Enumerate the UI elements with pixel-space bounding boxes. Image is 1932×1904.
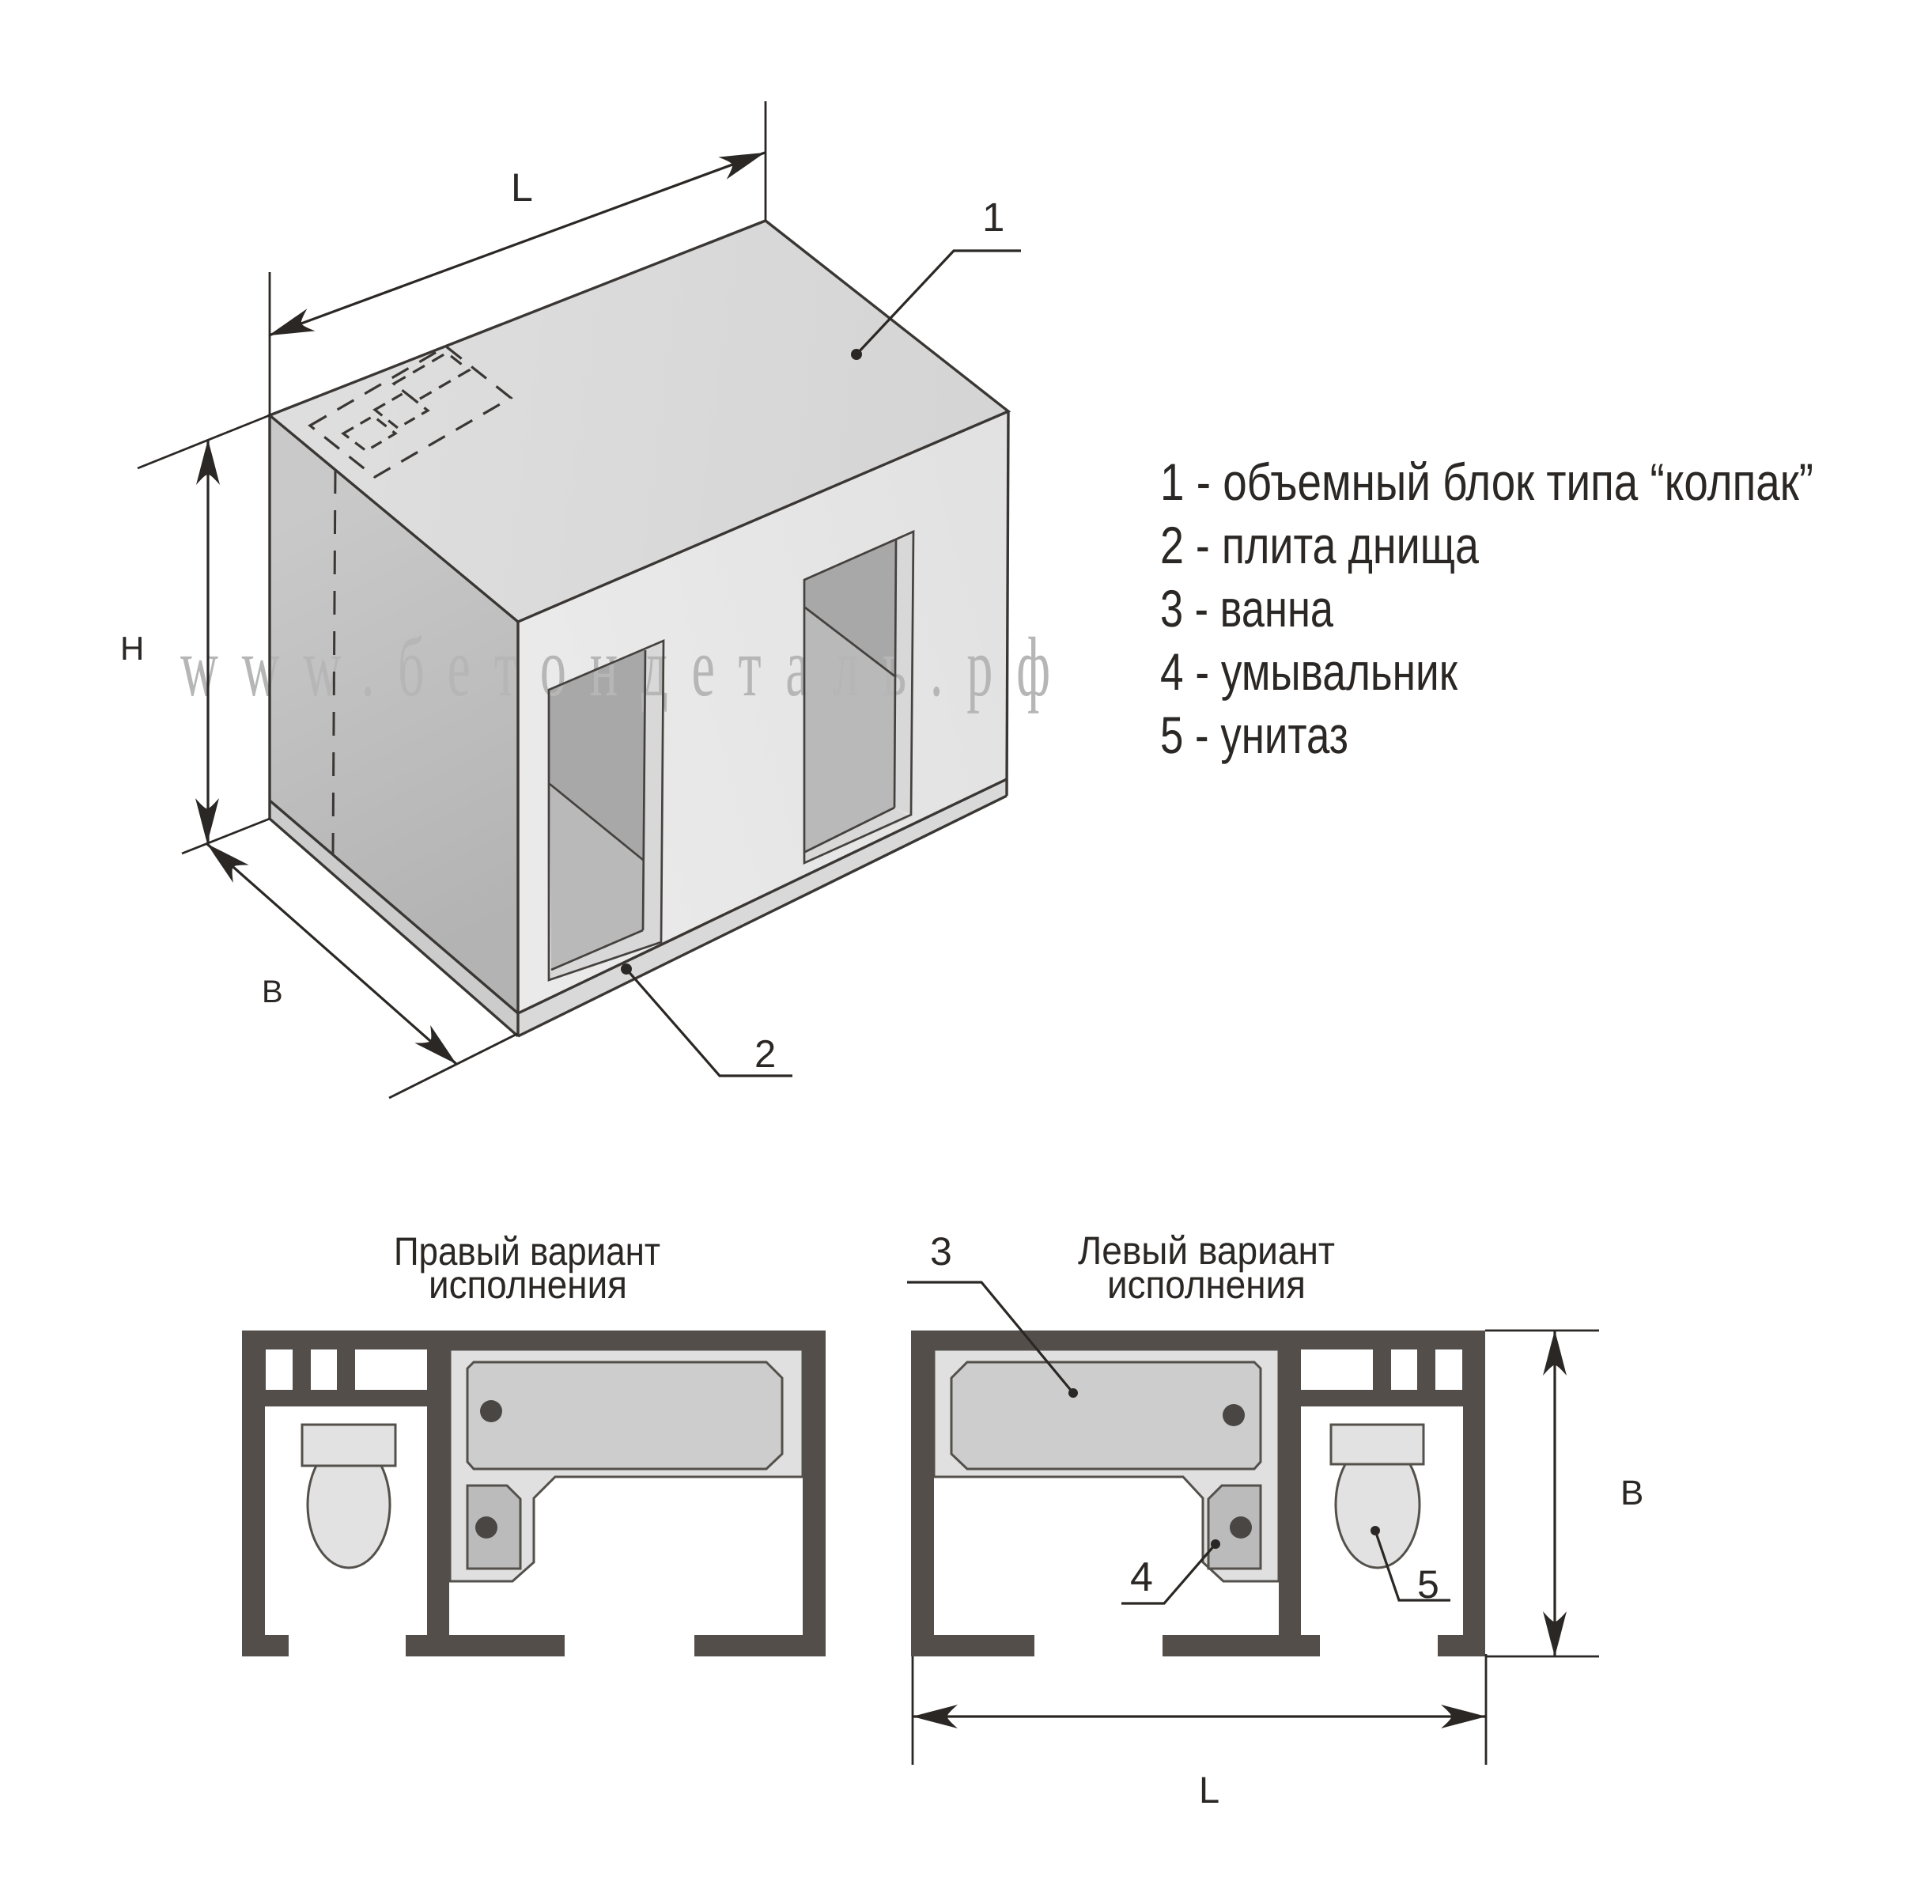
svg-text:1 - объемный блок типа “колпак: 1 - объемный блок типа “колпак” <box>1160 452 1813 511</box>
svg-text:www.бетондеталь.рф: www.бетондеталь.рф <box>180 621 1074 714</box>
svg-text:4: 4 <box>1130 1554 1153 1600</box>
svg-text:B: B <box>262 975 283 1009</box>
svg-text:1: 1 <box>982 195 1004 240</box>
svg-text:4 - умывальник: 4 - умывальник <box>1160 642 1458 701</box>
svg-text:L: L <box>511 165 533 210</box>
svg-text:3: 3 <box>930 1229 952 1274</box>
svg-text:H: H <box>120 630 144 667</box>
svg-text:2 - плита днища: 2 - плита днища <box>1160 516 1479 574</box>
svg-text:исполнения: исполнения <box>429 1262 627 1307</box>
svg-text:3 - ванна: 3 - ванна <box>1160 579 1333 638</box>
svg-text:5: 5 <box>1417 1562 1439 1607</box>
svg-text:исполнения: исполнения <box>1107 1262 1306 1307</box>
svg-text:B: B <box>1620 1474 1643 1512</box>
svg-text:5 - унитаз: 5 - унитаз <box>1160 706 1348 764</box>
svg-text:2: 2 <box>754 1033 776 1076</box>
svg-text:L: L <box>1199 1769 1219 1811</box>
